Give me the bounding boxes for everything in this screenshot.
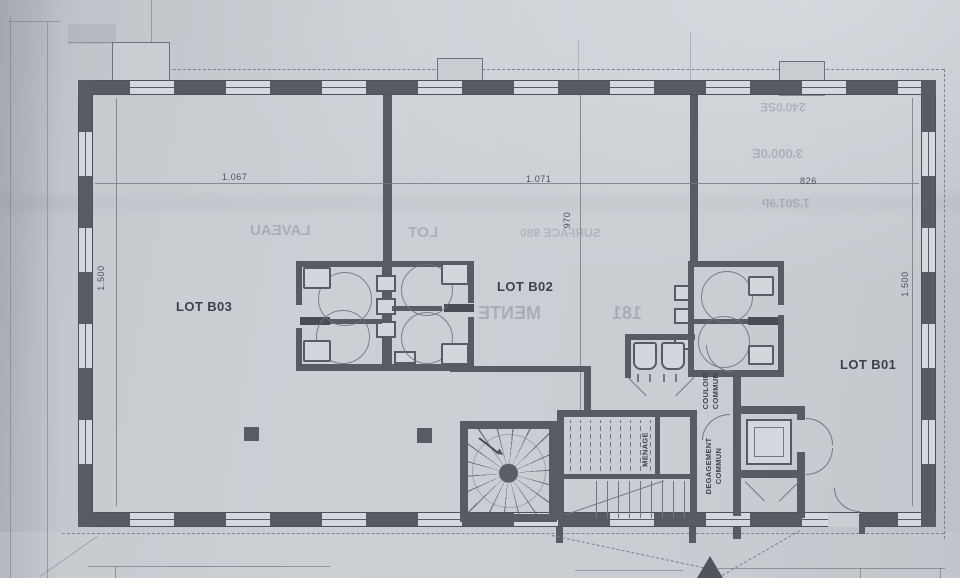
- door-gap: [828, 513, 860, 527]
- dimension-line-left: [116, 98, 117, 506]
- bleedthrough-text: 3'000'0E: [752, 146, 803, 161]
- wc-block-wall: [688, 261, 784, 267]
- lot-boundary-line: [580, 95, 581, 412]
- site-line: [718, 568, 945, 569]
- bleedthrough-text: MENTE: [478, 303, 541, 324]
- door-leaf: [859, 514, 865, 534]
- bleedthrough-text: LAVEAU: [250, 222, 311, 239]
- bleedthrough-text: 1'S01'9b: [762, 196, 810, 210]
- wall-stub: [689, 527, 696, 543]
- pilaster: [112, 42, 170, 81]
- overhang-dashed-line: [158, 69, 944, 70]
- stair-wall: [557, 410, 564, 520]
- lot-label-b03: LOT B03: [176, 300, 232, 313]
- adjacent-structure: [68, 24, 116, 44]
- lot-label-b01: LOT B01: [840, 358, 896, 371]
- elevator-wall-stub: [733, 478, 741, 516]
- niche-wall: [625, 334, 631, 378]
- room-label-couloir: COULOIR COMMUN: [697, 362, 725, 420]
- wc-block-wall: [296, 261, 302, 305]
- floor-plan-photo: 1.067 1.071 826 1.500 1.500 970: [0, 0, 960, 578]
- wall-corner: [921, 512, 936, 527]
- window-wall-left: [78, 80, 93, 527]
- margin-line: [47, 22, 48, 578]
- dimension-line-right: [912, 98, 913, 506]
- basin-leg: [649, 374, 651, 382]
- corridor-wall: [450, 366, 590, 372]
- washbasin: [661, 342, 685, 370]
- sink: [303, 340, 331, 362]
- wall-stub: [733, 527, 741, 539]
- elevator-wall: [733, 406, 805, 414]
- stair-wall: [557, 410, 697, 417]
- partition-wall: [383, 95, 392, 263]
- spiral-stair-circle: [472, 434, 546, 508]
- partition-wall: [690, 95, 698, 262]
- room-label-degagement: DEGAGEMENT COMMUN: [700, 432, 728, 500]
- overhang-dashed-line: [944, 69, 945, 539]
- washbasin: [633, 342, 657, 370]
- construction-line: [690, 32, 691, 82]
- stair-wall: [690, 410, 697, 520]
- basin-leg: [663, 374, 665, 382]
- entrance-marker-triangle: [697, 556, 723, 578]
- dimension-label-left: 1.500: [95, 255, 107, 301]
- site-line: [575, 570, 683, 571]
- lot-label-b02: LOT B02: [497, 280, 553, 293]
- sink: [441, 343, 469, 365]
- spiral-room-wall: [549, 421, 557, 522]
- site-tick: [940, 568, 941, 578]
- corridor-wall: [584, 366, 591, 414]
- dimension-label-top-left: 1.067: [222, 173, 248, 182]
- duct-box: [376, 275, 396, 292]
- spiral-room-wall: [460, 421, 468, 522]
- column: [417, 428, 432, 443]
- wall-corner: [78, 80, 93, 95]
- duct-box: [674, 308, 690, 324]
- elevator-wall: [740, 470, 805, 478]
- site-line: [88, 566, 330, 567]
- wall-corner: [78, 512, 93, 527]
- duct-box: [674, 285, 690, 301]
- dimension-line-top: [95, 183, 919, 184]
- wc-block-wall: [778, 315, 784, 377]
- spiral-room-wall: [460, 514, 557, 522]
- sink: [303, 267, 331, 289]
- sink: [748, 276, 774, 296]
- dimension-label-top-right: 826: [800, 177, 817, 186]
- dimension-label-right: 1.500: [899, 261, 911, 307]
- elevator-door-gap: [797, 420, 805, 452]
- site-tick: [115, 566, 116, 578]
- sink: [748, 345, 774, 365]
- paper-lower-band: [0, 532, 960, 578]
- spiral-room-wall: [460, 421, 557, 429]
- wc-block-wall: [778, 261, 784, 305]
- margin-line: [10, 18, 11, 578]
- basin-leg: [675, 374, 677, 382]
- stair-landing-edge: [564, 474, 690, 479]
- site-tick: [860, 568, 861, 578]
- sink: [441, 263, 469, 285]
- wc-block-wall: [296, 328, 302, 371]
- bleedthrough-text: 240'0SE: [760, 100, 806, 114]
- construction-line: [578, 40, 579, 82]
- elevator-cab-inner: [754, 427, 784, 457]
- niche-wall: [625, 334, 695, 340]
- bleedthrough-text: 181: [612, 303, 642, 324]
- room-label-menage: MENAGE: [640, 422, 651, 478]
- wall-corner: [921, 80, 936, 95]
- bleedthrough-text: LOT: [408, 224, 438, 241]
- sliding-door-handle: [748, 317, 778, 325]
- overhang-dashed-line: [62, 533, 944, 534]
- closet-wall: [655, 417, 660, 474]
- dimension-label-top-mid: 1.071: [526, 175, 552, 184]
- sliding-door-handle: [444, 304, 474, 312]
- margin-line: [8, 21, 60, 22]
- wall-stub: [556, 527, 563, 543]
- column: [244, 427, 259, 441]
- window-wall-top: [78, 80, 936, 95]
- basin-leg: [637, 374, 639, 382]
- bleedthrough-text: SURFACE 980: [520, 226, 601, 240]
- window-wall-right: [921, 80, 936, 527]
